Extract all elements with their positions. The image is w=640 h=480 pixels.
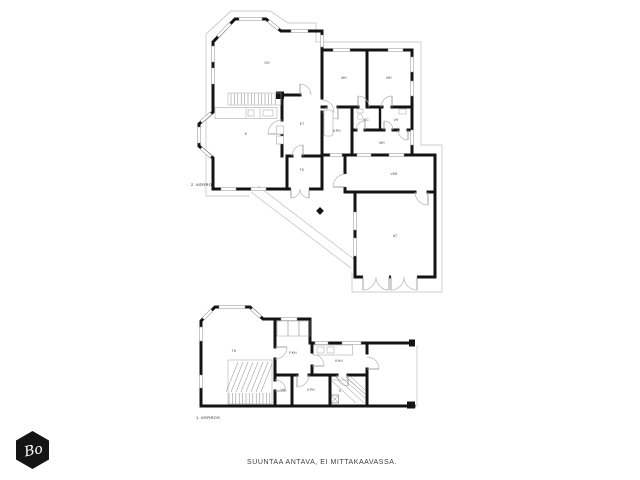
windows xyxy=(198,18,414,257)
floor-label-1: 1. KERROS xyxy=(196,415,220,420)
floorplan-drawing: OH K ET TK MH MH KPH WC VH MH VAR AT 2. … xyxy=(0,0,640,480)
room-label-bathroom: KPH xyxy=(333,129,341,133)
fixtures-upper xyxy=(215,108,406,145)
appliance xyxy=(277,126,284,134)
exterior-walls xyxy=(199,19,435,277)
floorplan-page: OH K ET TK MH MH KPH WC VH MH VAR AT 2. … xyxy=(0,0,640,480)
chimney-block xyxy=(276,92,284,100)
terrace-edge-line xyxy=(258,186,355,260)
room-label-kitchen: K xyxy=(245,132,248,136)
room-label-wc: WC xyxy=(363,118,369,122)
fixtures-lower xyxy=(277,321,365,403)
room-label-garage: AT xyxy=(393,234,397,238)
room-label-vestibule: TK xyxy=(300,168,305,172)
room-label-bathroom-lower: KPH xyxy=(307,388,315,392)
staircase-upper xyxy=(228,93,281,105)
room-label-bedroom-3: MH xyxy=(379,141,385,145)
room-label-fireplace-room: TH xyxy=(232,349,237,353)
toilet xyxy=(357,109,363,113)
sauna-stove xyxy=(332,395,339,403)
utility-counter xyxy=(314,345,353,355)
terrace-column-marker xyxy=(316,207,324,215)
brand-logo: Bo xyxy=(16,431,49,469)
exterior-walls-lower xyxy=(201,307,415,409)
appliance xyxy=(277,136,284,144)
wardrobe xyxy=(277,321,288,336)
room-label-dressing-room: PKH xyxy=(289,351,297,355)
room-label-storage: VAR xyxy=(390,172,398,176)
washbasin xyxy=(399,109,406,114)
room-label-closet: VH xyxy=(394,118,399,122)
terrace-edge-line xyxy=(251,192,351,268)
disclaimer-caption: SUUNTAA ANTAVA, EI MITTAKAAVASSA. xyxy=(247,459,397,466)
room-label-living-room: OH xyxy=(264,61,270,65)
doors xyxy=(268,84,428,290)
floor-label-2: 2. KERROS xyxy=(191,182,215,187)
wardrobe xyxy=(288,321,299,336)
room-label-utility-room: KHH xyxy=(335,359,343,363)
roof-eaves-outline xyxy=(206,11,442,292)
room-label-entry-hall: ET xyxy=(300,122,305,126)
wardrobe xyxy=(299,321,310,336)
staircase-lower xyxy=(226,360,272,404)
upper-floor-plan: OH K ET TK MH MH KPH WC VH MH VAR AT 2. … xyxy=(191,11,442,292)
bathtub xyxy=(324,110,333,136)
room-label-bedroom-1: MH xyxy=(341,76,347,80)
room-label-bedroom-2: MH xyxy=(386,76,392,80)
sauna-benches xyxy=(332,377,365,403)
room-label-closet-lower: VH xyxy=(281,388,286,392)
lower-floor-plan: TH PKH KHH VH KPH S 1. KERROS xyxy=(196,306,417,421)
